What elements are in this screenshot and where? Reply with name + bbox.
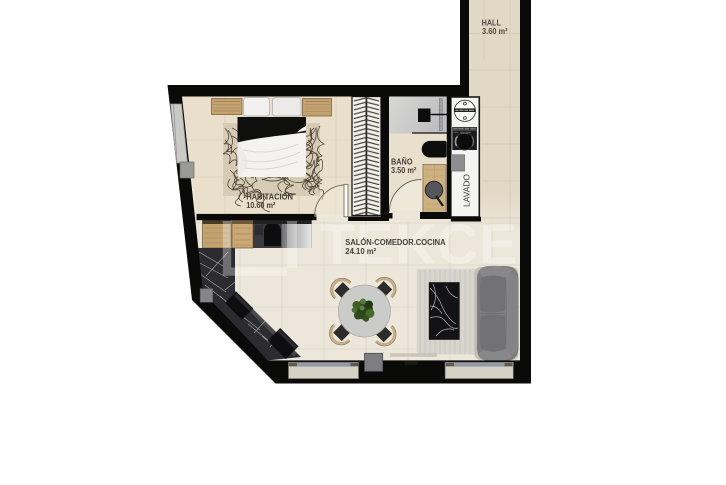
svg-text:LAVADO: LAVADO	[462, 174, 472, 207]
svg-text:3.60 m²: 3.60 m²	[482, 26, 508, 36]
svg-text:10.60 m²: 10.60 m²	[246, 200, 275, 210]
svg-text:3.50 m²: 3.50 m²	[391, 165, 416, 175]
svg-text:24.10 m²: 24.10 m²	[345, 246, 376, 256]
